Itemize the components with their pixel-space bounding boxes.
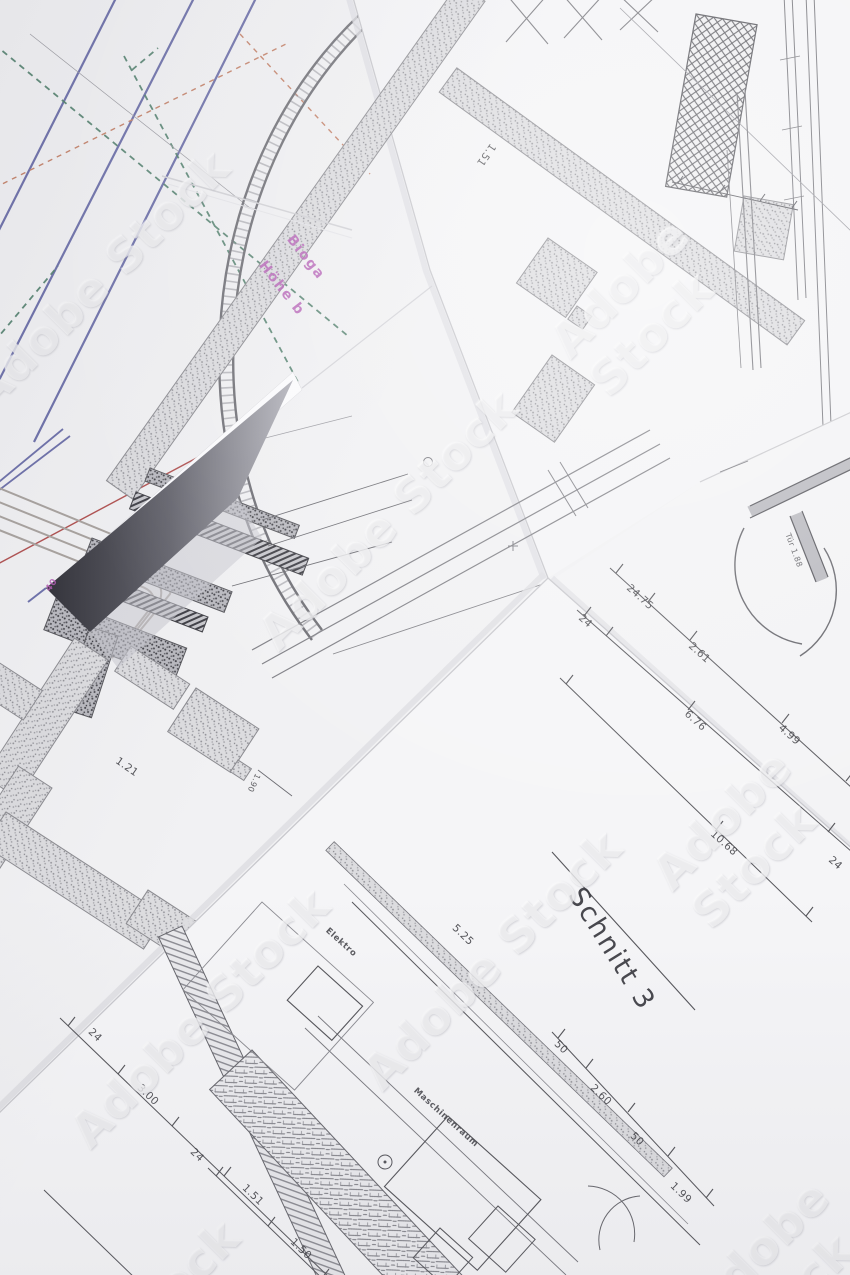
blueprint-linework bbox=[0, 0, 850, 1275]
blueprints-photo: Bioga Höhe b 40 1.51 Tür 1.88 1.21 1.90 … bbox=[0, 0, 850, 1275]
site-plan-orange-dashed bbox=[0, 34, 370, 188]
paper-fold bbox=[46, 176, 432, 668]
